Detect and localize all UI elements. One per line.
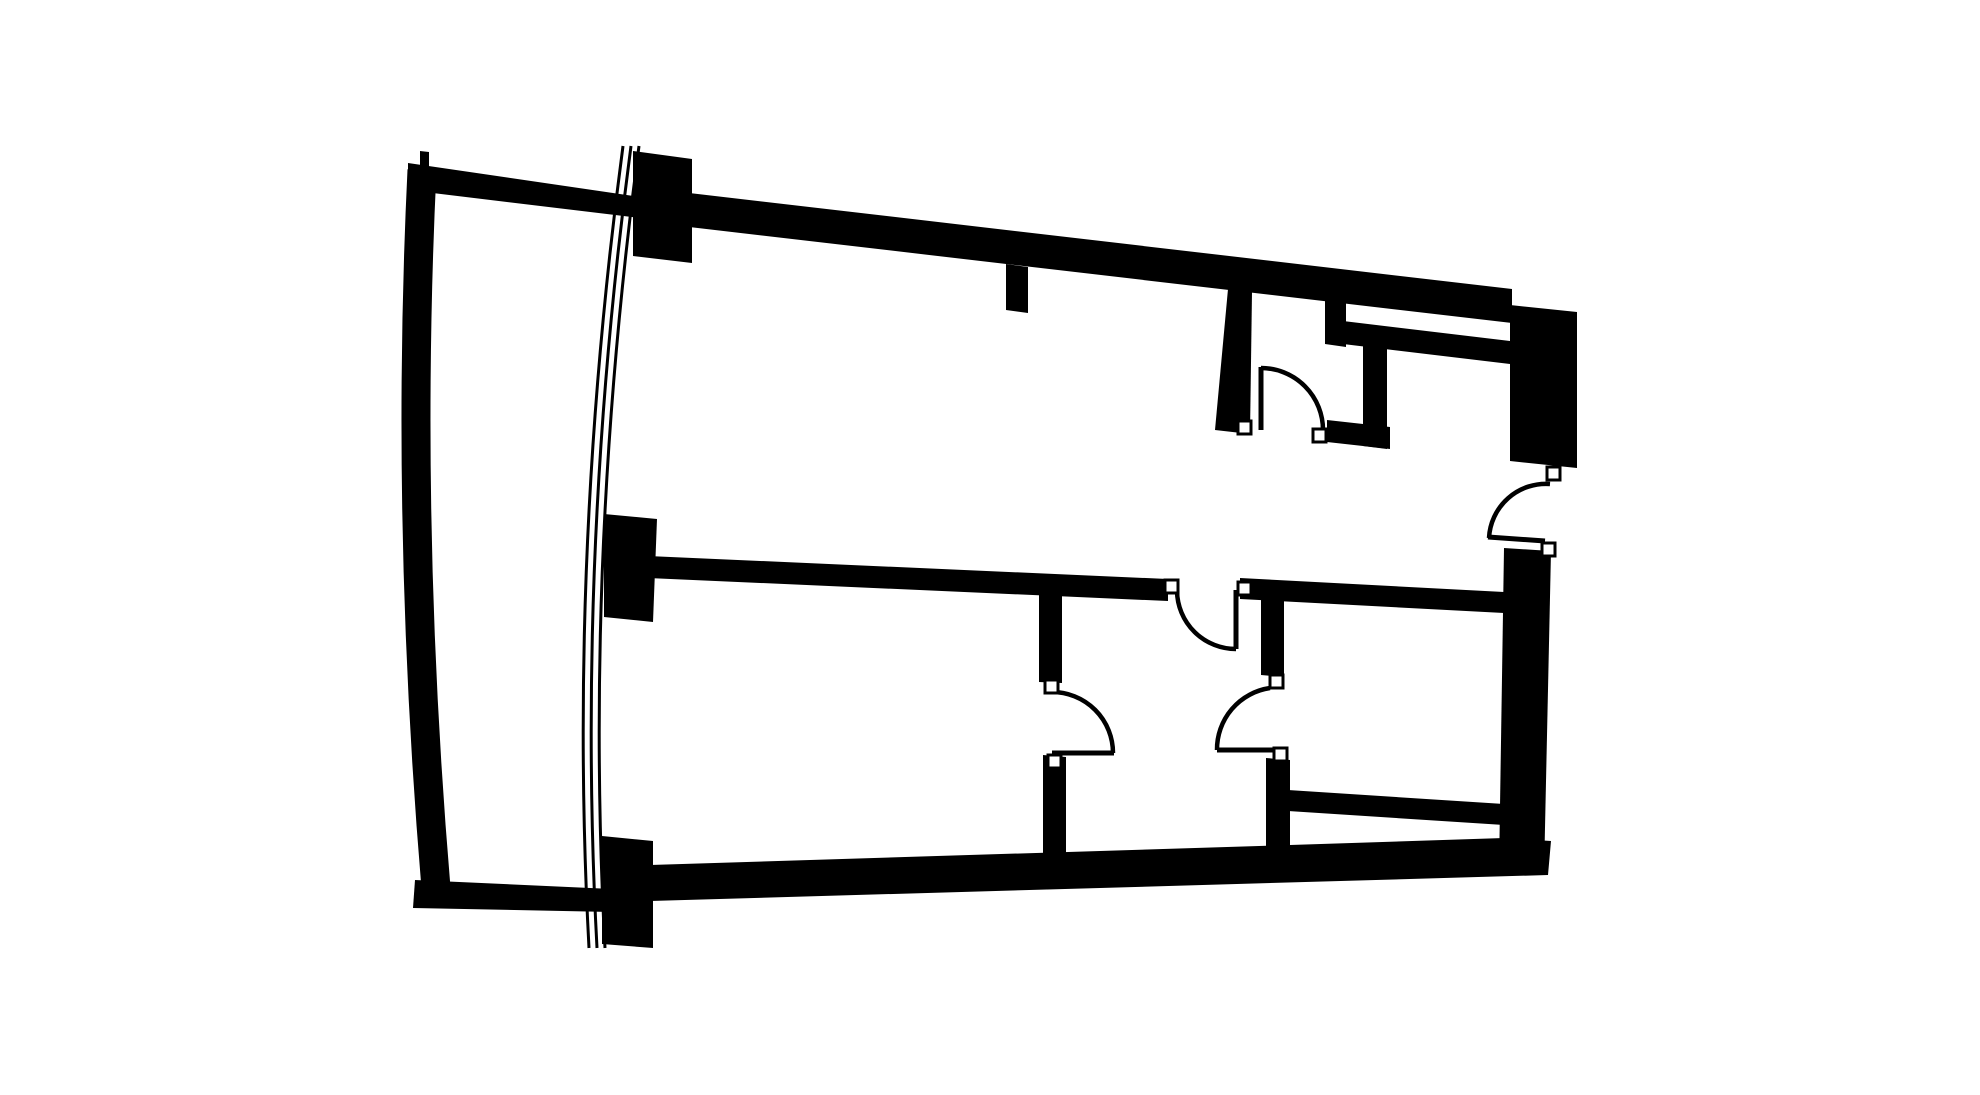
hall-north-door-hinge-jamb <box>1238 582 1251 595</box>
hall-east-door-swing-arc <box>1217 688 1270 750</box>
floor-plan <box>0 0 1980 1095</box>
wc-slot-left-stub <box>1325 299 1346 347</box>
hall-east-wall-upper <box>1261 596 1284 677</box>
wc-door-left-jamb <box>1238 421 1251 434</box>
wc-door-swing-arc <box>1261 368 1323 430</box>
hall-north-door-swing-arc <box>1177 591 1236 649</box>
top-exterior-wall <box>655 189 1512 323</box>
hall-east-door-upper-jamb <box>1270 675 1283 688</box>
wc-door-right-jamb <box>1313 429 1326 442</box>
entry-door-lower-jamb <box>1542 543 1555 556</box>
middle-wall <box>648 556 1168 601</box>
hall-west-door-swing-arc <box>1052 692 1113 753</box>
hall-west-door-lower-jamb <box>1048 755 1061 768</box>
hall-east-wall-lower <box>1266 758 1290 852</box>
top-right-corner-block <box>1510 305 1577 468</box>
middle-wall-end-jamb <box>1165 580 1178 593</box>
hall-west-wall-lower <box>1043 755 1066 864</box>
page <box>0 0 1980 1095</box>
room2-south-wall <box>1288 790 1504 825</box>
wc-west-wall <box>1215 289 1252 434</box>
entry-door-leaf <box>1488 537 1545 541</box>
entry-door-upper-jamb <box>1547 467 1560 480</box>
hall-east-door-lower-jamb <box>1274 748 1287 761</box>
corner-tick <box>420 151 429 169</box>
terrace-west-wall <box>416 170 436 888</box>
terrace-north-wall <box>408 163 640 218</box>
entry-door-swing-arc <box>1489 484 1550 538</box>
right-exterior-wall <box>1499 548 1551 874</box>
hall-west-door-upper-jamb <box>1045 680 1058 693</box>
hall-west-wall-upper <box>1039 593 1062 683</box>
top-wall-stub <box>1006 264 1028 313</box>
bottom-interior-wall <box>650 838 1551 901</box>
